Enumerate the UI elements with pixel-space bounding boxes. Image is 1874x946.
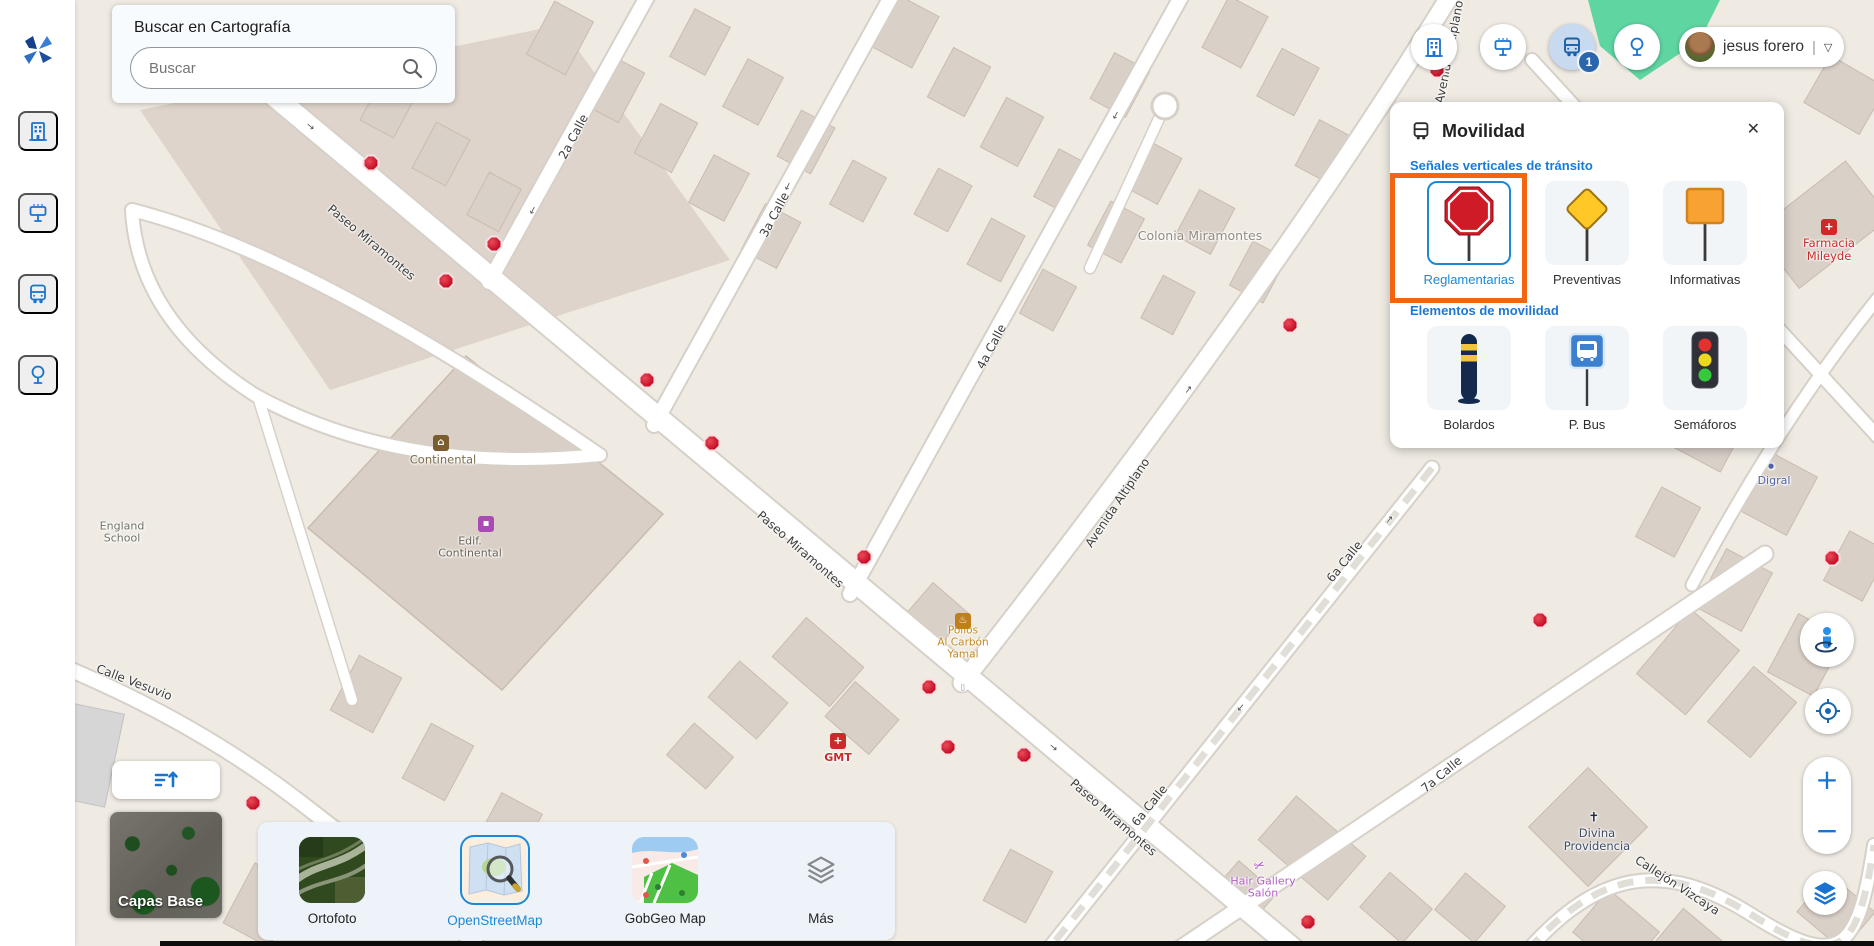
stop-sign-icon [1427,181,1511,265]
traffic-sign-marker[interactable] [1300,914,1317,931]
base-layer-gobgeo[interactable]: GobGeo Map [625,837,706,926]
toolbar-billboard-button[interactable] [1480,24,1526,70]
search-icon[interactable] [400,56,424,80]
search-pill [130,47,437,89]
close-icon[interactable]: ✕ [1741,118,1766,140]
traffic-sign-marker[interactable] [1824,550,1841,567]
movilidad-panel: Movilidad ✕ Señales verticales de tránsi… [1390,102,1784,448]
base-layer-openstreetmap[interactable]: OpenStreetMap [447,835,542,928]
sidebar-item-tree[interactable] [18,355,58,395]
user-name: jesus forero [1723,38,1804,56]
layer-order-button[interactable] [112,761,220,799]
movilidad-item-bolardos[interactable]: Bolardos [1410,326,1528,432]
locate-button[interactable] [1805,688,1851,734]
ortofoto-thumbnail [299,837,365,903]
base-layers-widget-label: Capas Base [118,893,203,910]
section-title-senales: Señales verticales de tránsito [1410,158,1764,173]
openstreetmap-thumbnail [460,835,530,905]
zoom-in-button[interactable]: + [1809,765,1844,795]
bottom-edge-bar [160,941,1874,946]
toolbar-tree-button[interactable] [1614,24,1660,70]
bollard-icon [1427,326,1511,410]
left-sidebar [0,0,75,946]
movilidad-item-preventivas[interactable]: Preventivas [1528,181,1646,287]
avatar [1685,32,1715,62]
base-layer-more[interactable]: Más [788,837,854,926]
info-square-icon [1663,181,1747,265]
panel-title: Movilidad [1442,121,1525,142]
toolbar-mobility-button[interactable]: 1 [1549,24,1595,70]
movilidad-item-pbus[interactable]: P. Bus [1528,326,1646,432]
street-view-button[interactable] [1800,613,1854,667]
gobgeo-thumbnail [632,837,698,903]
user-menu[interactable]: jesus forero | ▽ [1679,27,1844,67]
movilidad-item-reglamentarias[interactable]: Reglamentarias [1410,181,1528,287]
sidebar-item-billboard[interactable] [18,193,58,233]
app: 2a Calle3a Calle4a Calle6a Calle6a Calle… [0,0,1874,946]
base-layer-ortofoto[interactable]: Ortofoto [299,837,365,926]
search-panel: Buscar en Cartografía [112,5,455,103]
search-panel-title: Buscar en Cartografía [134,19,437,37]
sidebar-item-bus[interactable] [18,274,58,314]
user-separator: | [1812,39,1816,56]
movilidad-item-semaforos[interactable]: Semáforos [1646,326,1764,432]
mobility-badge: 1 [1577,50,1601,74]
zoom-control: + − [1803,757,1851,854]
movilidad-item-informativas[interactable]: Informativas [1646,181,1764,287]
search-input[interactable] [147,59,400,78]
chevron-down-icon: ▽ [1824,41,1832,54]
traffic-sign-marker[interactable] [1532,612,1549,629]
toolbar-buildings-button[interactable] [1411,24,1457,70]
bus-icon [1410,120,1432,142]
zoom-out-button[interactable]: − [1809,816,1844,846]
sidebar-item-buildings[interactable] [18,111,58,151]
base-layers-widget[interactable]: Capas Base [110,812,222,918]
traffic-light-icon [1663,326,1747,410]
warning-diamond-icon [1545,181,1629,265]
section-title-elementos: Elementos de movilidad [1410,303,1764,318]
bus-stop-sign-icon [1545,326,1629,410]
traffic-sign-marker[interactable] [1282,317,1299,334]
map-layers-button[interactable] [1803,871,1847,915]
base-layer-chooser: Ortofoto OpenStreetMap [258,822,895,940]
app-logo-icon [18,30,58,70]
layers-icon [788,837,854,903]
